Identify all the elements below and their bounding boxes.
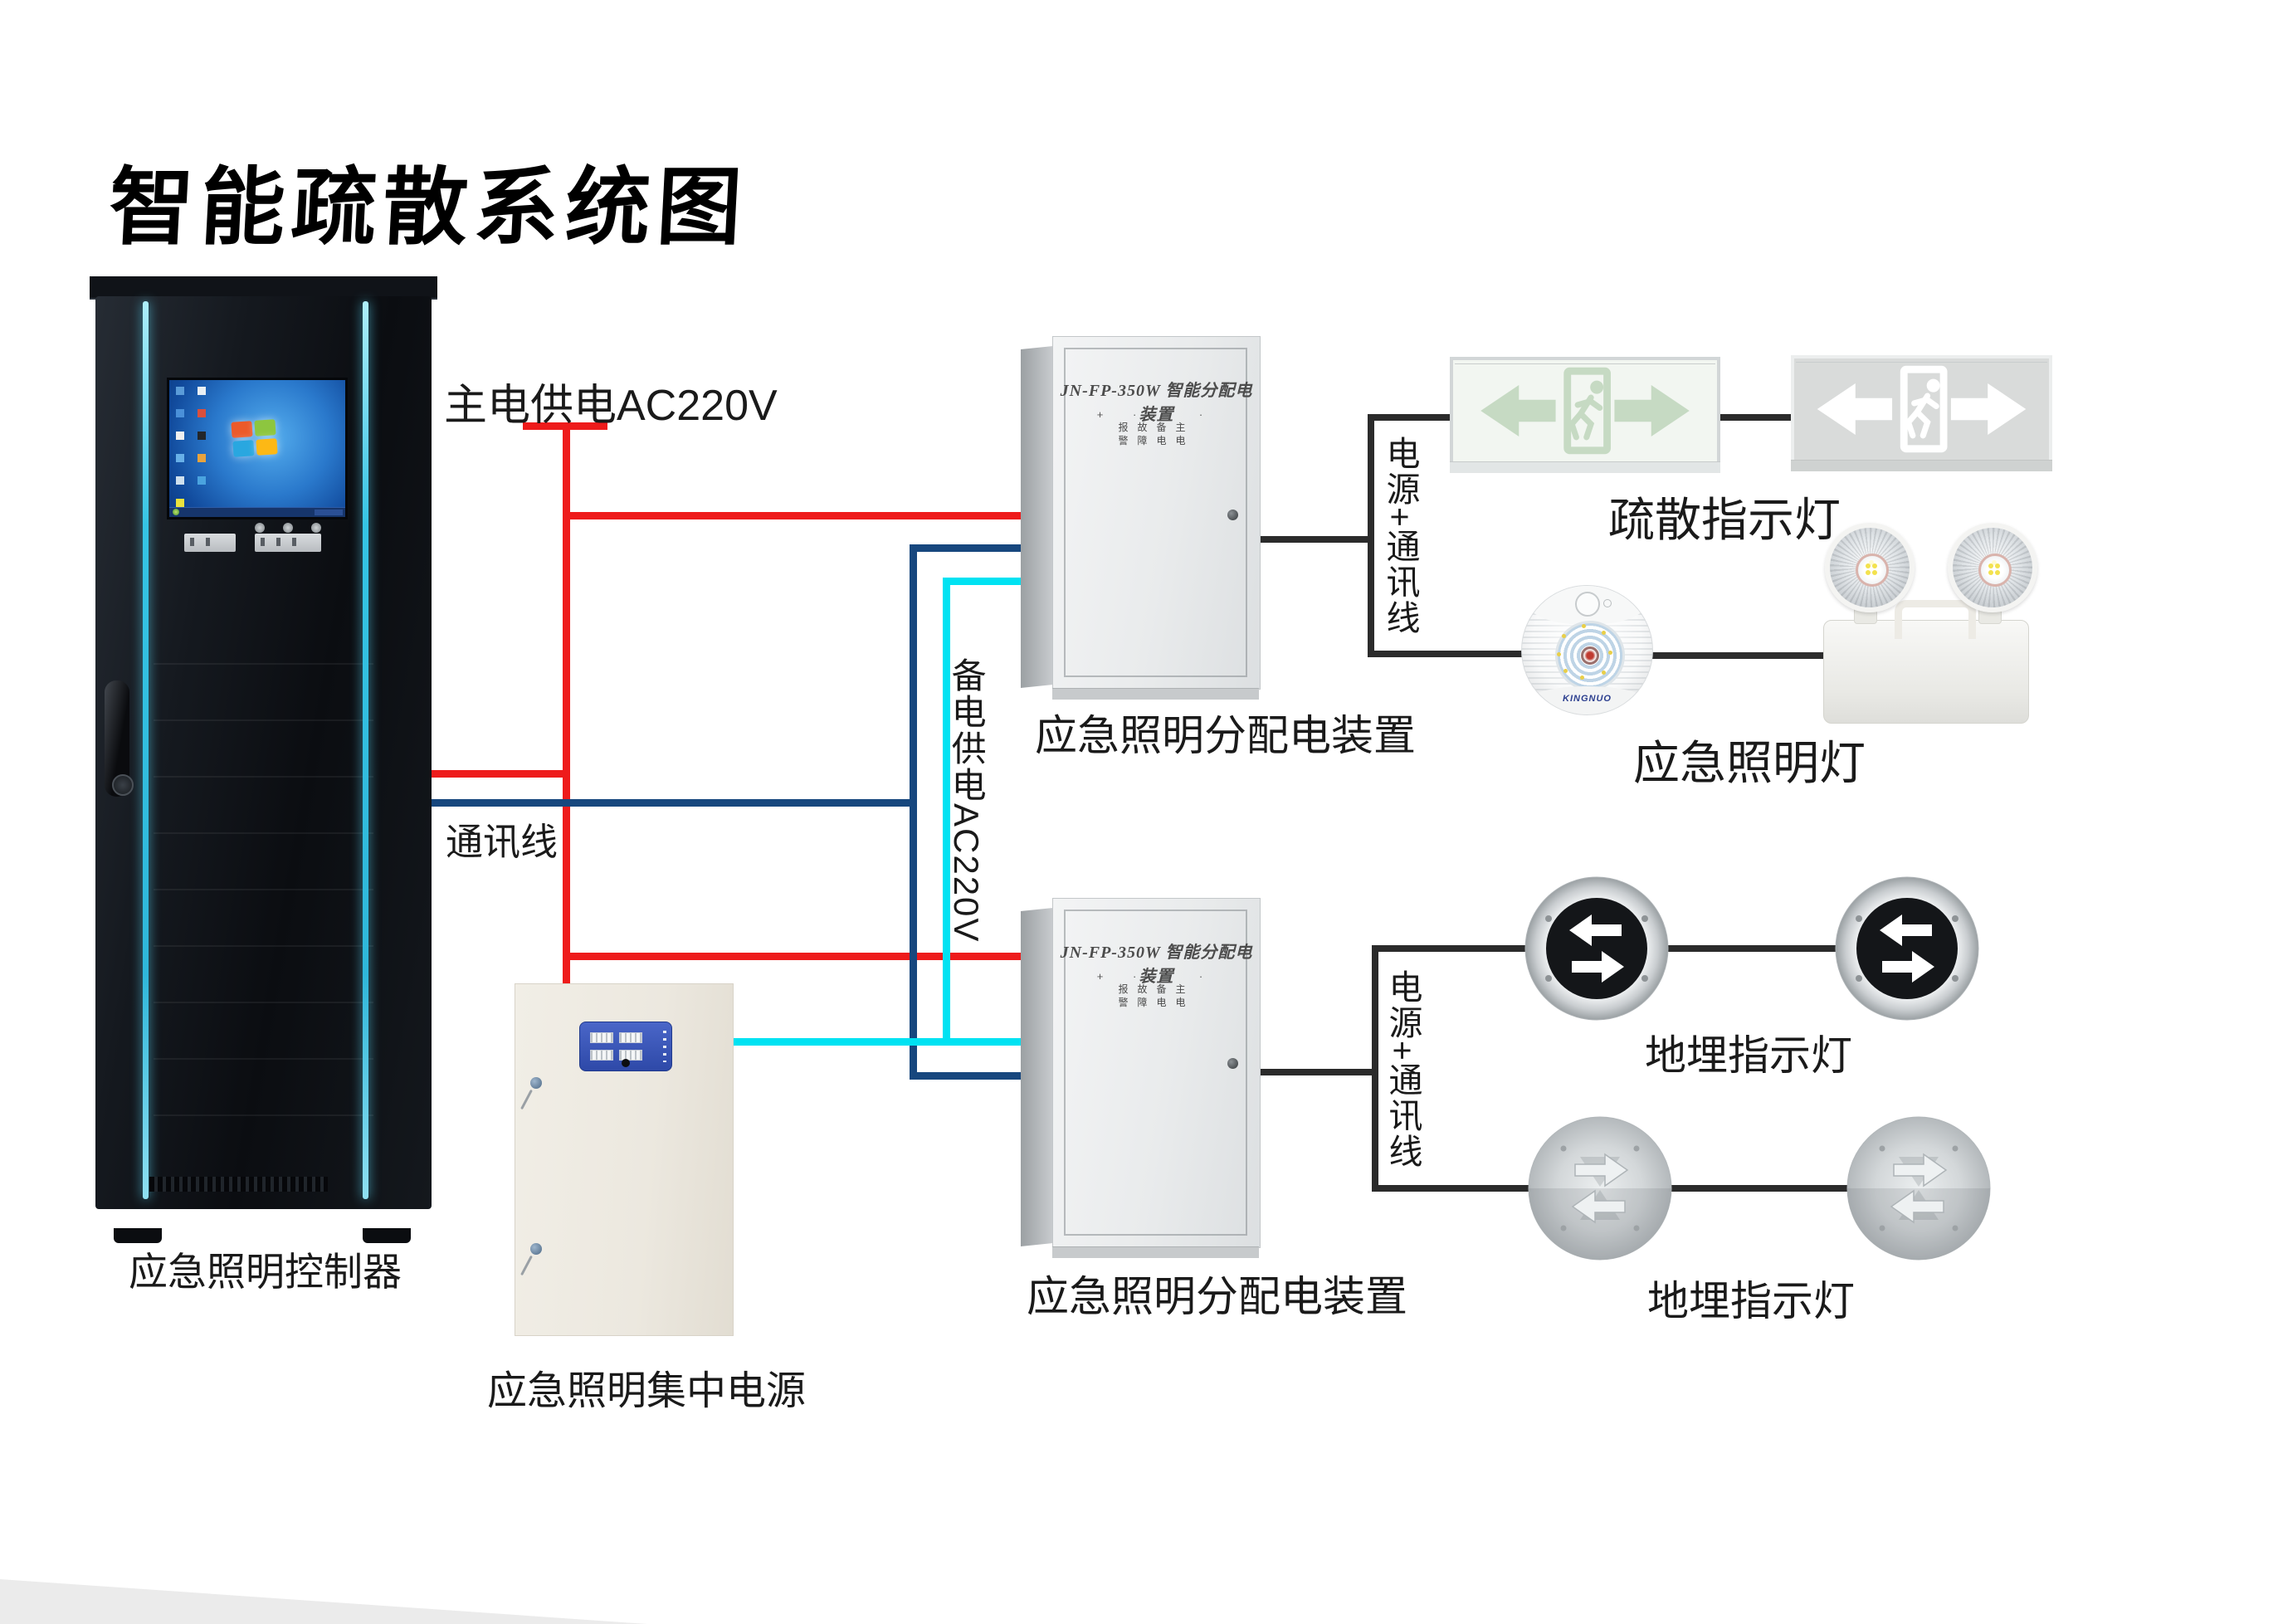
cps-indicator-column [663,1031,666,1062]
led-cluster [1856,554,1889,587]
dbox1-bottom [1052,688,1259,700]
rack-screw-3 [311,523,321,533]
cps-key-top [520,1090,533,1109]
label-main-power: 主电供电AC220V [444,370,778,432]
link-box2-vertical [1372,945,1378,1192]
lamp-center-sensor [1581,646,1599,665]
link-box1-vertical [1368,414,1374,657]
rack-led-strip-left [143,301,149,1199]
rack-door-lock [112,774,134,796]
link-ground3-ground4 [1670,1185,1847,1192]
dbox2-led-row2: 警障电电 [1053,997,1260,1008]
exit-sign-2 [1791,355,2052,471]
main-power-trunk-vertical [563,422,570,987]
dbox1-led-row2: 警障电电 [1053,435,1260,446]
exit-sign-1 [1450,357,1720,473]
cps-control-panel [579,1022,672,1071]
windows-logo-red [231,421,252,438]
cps-button [622,1059,630,1067]
backup-power-to-box1 [943,578,1022,585]
cps-display-3 [590,1050,613,1061]
label-ground-lights-bottom: 地埋指示灯 [1647,1268,1855,1328]
dbox2-led-dots: + · · · [1053,970,1260,983]
label-dist-box-top: 应急照明分配电装置 [1035,701,1416,763]
windows-logo-yellow [256,438,277,456]
system-tray [315,510,343,515]
rack-button-panel-right [255,534,321,552]
cps-keyhole-bottom [530,1243,542,1255]
label-comm-line: 通讯线 [446,812,558,866]
exit-pictogram-icon [1452,359,1718,462]
start-orb-icon [173,509,179,515]
label-central-power: 应急照明集中电源 [487,1358,806,1416]
rack-button-panel-left [184,534,236,552]
emergency-lighting-controller [95,276,432,1228]
rack-screw-2 [283,523,293,533]
dbox2-face: JN-FP-350W 智能分配电装置 + · · · 报故备主 警障电电 [1052,898,1261,1248]
lamp-brand-band: KINGNUO [1529,686,1646,714]
comm-line-from-controller [415,799,917,807]
led-cluster [1978,554,2012,587]
link-box1-out [1257,536,1374,543]
rack-led-strip-right [363,301,368,1199]
windows-logo-blue [232,440,254,457]
backup-power-from-central [732,1038,1021,1046]
label-controller: 应急照明控制器 [129,1240,402,1297]
label-power-comm-bottom: 电源+通讯线 [1384,969,1420,1169]
diagram-canvas: 智能疏散系统图 主电供电AC220V 通讯线 备电供电AC220V 电源+通讯线… [0,0,2278,1624]
label-emergency-lights: 应急照明灯 [1633,726,1866,793]
comm-line-to-box2 [910,1072,1024,1080]
exit-sign-2-base [1791,460,2052,471]
exit-sign-1-base [1450,461,1720,473]
rack-screw-1 [255,523,265,533]
ceiling-emergency-lamp: KINGNUO [1521,585,1653,715]
central-power-supply [515,983,734,1336]
main-power-branch-controller [415,770,570,778]
main-power-branch-box1 [563,512,1022,519]
dbox1-side [1021,346,1053,688]
link-to-ground-light-1 [1372,945,1526,952]
background-artifact [0,1549,647,1624]
main-power-branch-box2 [563,953,1023,960]
link-to-ground-light-3 [1372,1185,1529,1192]
rack-unit-lines [154,608,373,1139]
dbox2-side [1021,908,1053,1246]
label-dist-box-bottom: 应急照明分配电装置 [1027,1262,1407,1324]
desktop-icons [176,387,184,395]
dbox2-led-row1: 报故备主 [1053,983,1260,995]
ground-light-steel-2 [1846,1115,1992,1261]
label-power-comm-top: 电源+通讯线 [1382,436,1417,636]
link-ground1-ground2 [1668,945,1837,952]
twinlamp-head-left [1825,523,1915,612]
page-title: 智能疏散系统图 [106,139,752,261]
cps-key-bottom [520,1256,533,1275]
ground-light-black-1 [1524,875,1670,1022]
link-to-oval-lamp [1368,651,1523,657]
ground-light-black-2 [1834,875,1980,1022]
dbox2-keyhole [1227,1058,1238,1069]
label-exit-signs: 疏散指示灯 [1608,483,1841,550]
dbox1-led-dots: + · · · [1053,408,1260,421]
link-oval-twin [1651,652,1824,659]
twinlamp-handle [1895,600,1976,639]
twin-head-emergency-lamp [1823,523,2027,722]
link-to-exit-sign-1 [1368,414,1451,421]
cps-display-2 [619,1032,642,1043]
lamp-indicator-dot [1603,599,1612,607]
label-backup-power: 备电供电AC220V [948,657,984,943]
twinlamp-head-right [1948,523,2037,612]
label-ground-lights-top: 地埋指示灯 [1645,1022,1852,1082]
dbox2-bottom [1052,1246,1259,1258]
comm-line-vertical [910,544,917,1080]
lamp-test-button [1575,592,1600,617]
rack-monitor [167,378,348,519]
exit-pictogram-icon [1791,358,2052,461]
comm-line-to-box1 [910,544,1022,552]
distribution-box-top: JN-FP-350W 智能分配电装置 + · · · 报故备主 警障电电 [1021,336,1260,700]
brand-logo: KINGNUO [1563,694,1612,704]
dbox1-led-row1: 报故备主 [1053,422,1260,433]
cps-keyhole-top [530,1077,542,1089]
rack-vents [149,1177,328,1192]
distribution-box-bottom: JN-FP-350W 智能分配电装置 + · · · 报故备主 警障电电 [1021,898,1260,1258]
dbox1-face: JN-FP-350W 智能分配电装置 + · · · 报故备主 警障电电 [1052,336,1261,690]
link-sign1-sign2 [1720,414,1792,421]
ground-light-steel-1 [1527,1115,1673,1261]
link-box2-out [1260,1069,1373,1075]
cps-display-1 [590,1032,613,1043]
windows-logo-green [254,419,276,436]
dbox1-keyhole [1227,510,1238,520]
